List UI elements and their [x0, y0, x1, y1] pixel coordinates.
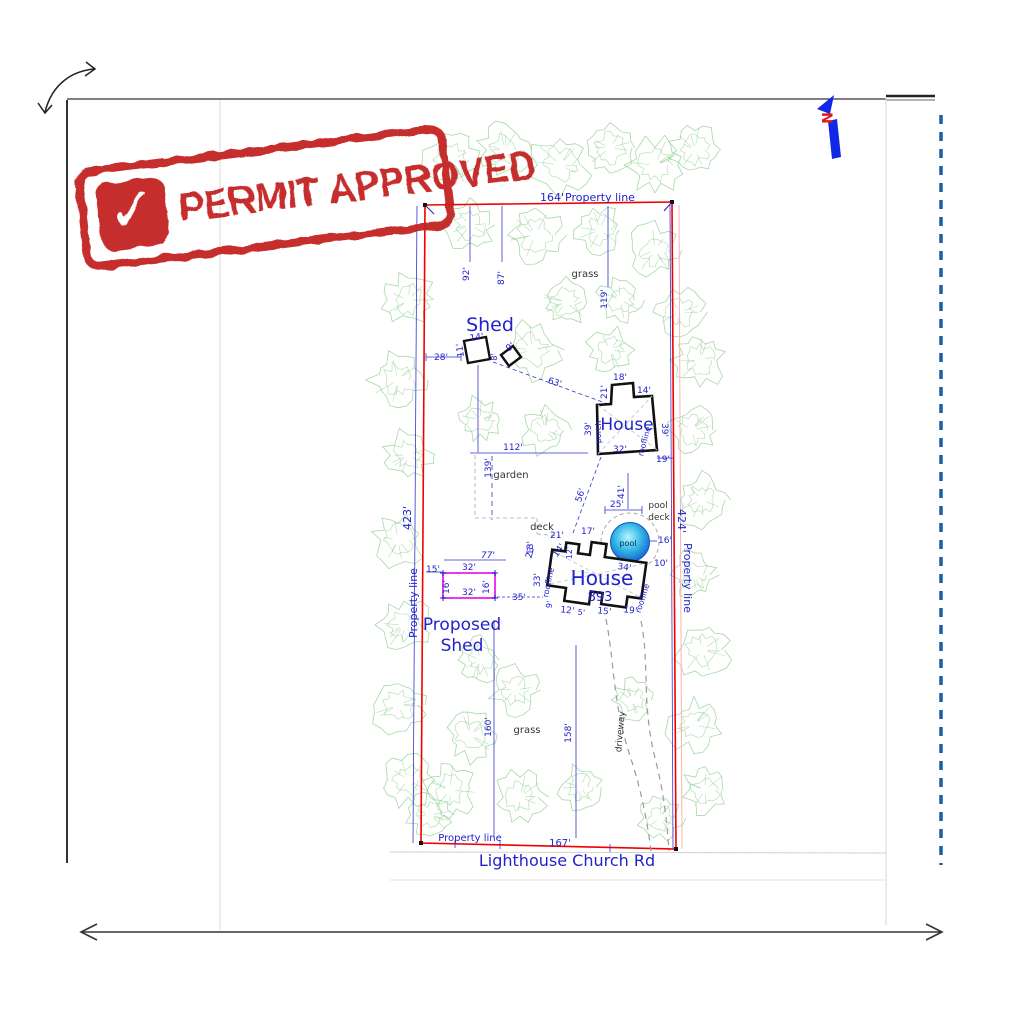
- dim-label: 39': [584, 422, 594, 436]
- house-number: 893: [588, 590, 613, 605]
- dim-label: 39': [659, 423, 669, 437]
- tree: [637, 796, 685, 841]
- dim-label: 87': [497, 271, 507, 285]
- tree: [674, 627, 732, 676]
- road-name: Lighthouse Church Rd: [479, 851, 655, 870]
- dim-label: 12': [565, 547, 574, 559]
- grass-label-bottom: grass: [513, 725, 540, 736]
- tree: [497, 769, 549, 822]
- dim-label: 164': [540, 191, 564, 204]
- dim-label: 8': [490, 353, 499, 360]
- dim-label: 424': [675, 509, 688, 533]
- permit-document-page: 164'Property line423'Property line424'Pr…: [0, 0, 1024, 1024]
- dim-label: 15': [426, 565, 440, 575]
- tree: [373, 684, 427, 736]
- dim-label: 28': [434, 353, 448, 363]
- dim-label: 15': [597, 606, 612, 617]
- tree: [665, 696, 721, 753]
- dim-label: 77': [481, 551, 495, 561]
- tree: [384, 753, 435, 808]
- dim-label: 5': [577, 608, 585, 618]
- north-label: N: [818, 112, 834, 124]
- pool-label: pool: [619, 539, 636, 548]
- plan-labels: 164'Property line423'Property line424'Pr…: [401, 112, 834, 870]
- tree: [528, 139, 592, 199]
- checkmark-glyph: ✓: [105, 178, 160, 241]
- property-line-label-left: Property line: [407, 568, 420, 638]
- dim-label: 12': [560, 605, 575, 616]
- tree: [557, 764, 602, 811]
- dim-label: 112': [503, 443, 523, 453]
- dim-label: 19': [656, 455, 670, 465]
- property-line-label-top: Property line: [565, 191, 635, 204]
- north-arrow: [817, 95, 841, 159]
- tree: [366, 351, 429, 408]
- dim-label: 35': [512, 593, 526, 603]
- tree: [488, 664, 540, 718]
- dim-label: 14': [637, 386, 651, 396]
- tree: [458, 396, 499, 442]
- tree: [670, 337, 726, 388]
- north-arrow-shaft: [828, 119, 841, 159]
- dim-label: 119': [600, 289, 610, 309]
- garden-label: garden: [493, 470, 528, 481]
- property-line-label-right: Property line: [681, 543, 694, 613]
- tree: [683, 767, 725, 816]
- tree: [586, 326, 636, 372]
- dim-label: 56': [574, 487, 588, 503]
- dim-label: 167': [549, 838, 571, 849]
- proposed-shed-label-1: Proposed: [423, 615, 501, 635]
- dim-label: 16': [442, 580, 452, 594]
- dim-label: 32': [613, 445, 627, 455]
- lower-house-label: House: [571, 566, 634, 590]
- north-arrow-head: [817, 95, 834, 114]
- dim-label: 92': [462, 267, 472, 281]
- dim-label: 21': [600, 385, 610, 399]
- tree: [653, 287, 708, 337]
- tree: [544, 276, 586, 323]
- dim-label: 41': [617, 485, 627, 499]
- proposed-shed-label-2: Shed: [441, 636, 484, 656]
- dim-label: 11': [455, 343, 467, 358]
- dim-label: 16': [658, 536, 672, 546]
- driveway-label: driveway: [614, 710, 628, 752]
- tree: [522, 405, 572, 457]
- dim-label: 19': [623, 605, 638, 616]
- dim-label: 10': [654, 559, 668, 569]
- dim-label: 25': [610, 500, 624, 510]
- dim-label: 33': [533, 573, 543, 587]
- tree: [587, 123, 635, 174]
- tree: [382, 428, 435, 477]
- pool-deck-label-1: pool: [648, 501, 667, 511]
- tree: [375, 601, 429, 650]
- property-line-label-bottom: Property line: [438, 833, 502, 844]
- dim-label: 18': [613, 373, 627, 383]
- dim-label: 160': [484, 717, 494, 737]
- dim-label: 423': [401, 506, 414, 530]
- tree: [381, 272, 434, 322]
- dim-label: 17': [581, 527, 595, 537]
- porch-label: porch: [594, 421, 603, 444]
- dim-label: 23': [524, 543, 537, 559]
- dim-label: 16': [482, 580, 492, 594]
- dim-label: 32': [462, 563, 476, 573]
- tree: [574, 207, 620, 255]
- dim-label: 14': [469, 332, 484, 344]
- dim-label: 9': [544, 600, 554, 609]
- dim-label: 158': [564, 723, 574, 743]
- bottom-scale-arrow: [81, 924, 942, 940]
- tree: [668, 405, 717, 453]
- dim-label: 63': [546, 376, 562, 390]
- tree: [508, 208, 567, 264]
- dim-label: 32': [462, 588, 476, 598]
- dim-label: 21': [550, 531, 564, 541]
- pool-deck-label-2: deck: [648, 513, 670, 523]
- checkmark-icon: ✓: [95, 176, 171, 252]
- tree: [669, 125, 721, 170]
- tree: [631, 220, 681, 277]
- grass-label-top: grass: [571, 269, 598, 280]
